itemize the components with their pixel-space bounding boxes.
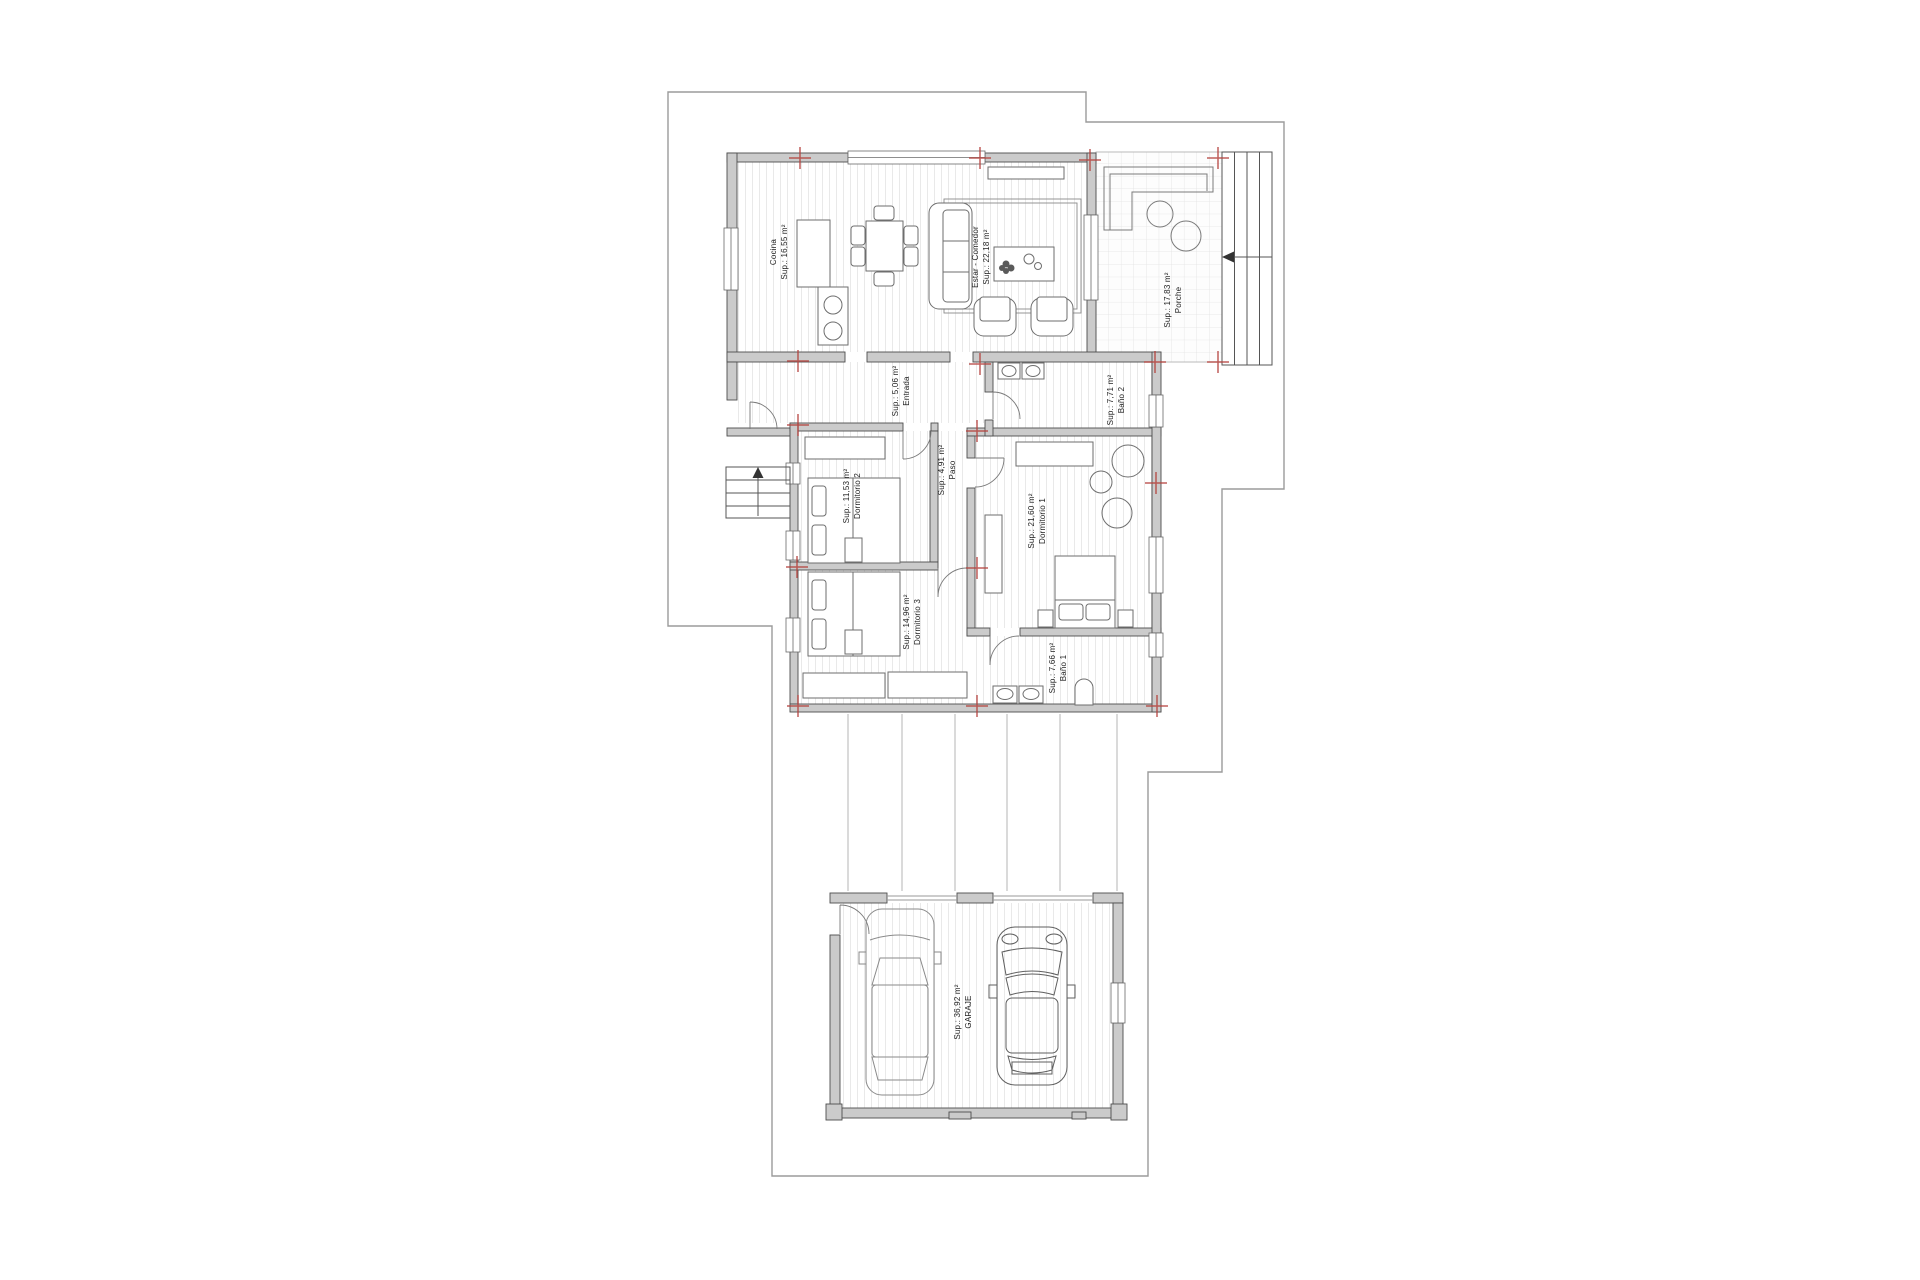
dining-chair bbox=[874, 206, 894, 220]
wardrobe bbox=[803, 673, 885, 698]
dining-chair bbox=[904, 226, 918, 245]
room-label-dormitorio1: Sup.: 21,60 m² Dormitorio 1 bbox=[1024, 446, 1050, 596]
room-area: Sup.: 7,71 m² bbox=[1105, 325, 1116, 475]
room-area: Sup.: 22,18 m² bbox=[981, 182, 992, 332]
room-name: Baño 2 bbox=[1116, 325, 1127, 475]
dining-chair bbox=[874, 272, 894, 286]
pillow bbox=[812, 619, 826, 649]
room-name: Paso bbox=[947, 395, 958, 545]
room-area: Sup.: 4,91 m² bbox=[936, 395, 947, 545]
toilet bbox=[1075, 679, 1093, 705]
dining-table bbox=[866, 221, 903, 271]
tv-sideboard bbox=[988, 167, 1064, 179]
pillow bbox=[812, 525, 826, 555]
floor-plan-canvas: Cocina Sup.: 16,55 m² Estar - Comedor Su… bbox=[0, 0, 1920, 1280]
room-name: Entrada bbox=[901, 316, 912, 466]
room-name: Dormitorio 2 bbox=[852, 421, 863, 571]
room-area: Sup.: 17,83 m² bbox=[1162, 225, 1173, 375]
room-name: Porche bbox=[1173, 225, 1184, 375]
entrance-steps bbox=[726, 467, 790, 518]
room-area: Sup.: 16,55 m² bbox=[779, 177, 790, 327]
room-area: Sup.: 5,06 m² bbox=[890, 316, 901, 466]
room-label-entrada: Sup.: 5,06 m² Entrada bbox=[888, 316, 914, 466]
dining-chair bbox=[851, 226, 865, 245]
room-label-cocina: Cocina Sup.: 16,55 m² bbox=[766, 177, 792, 327]
dining-chair bbox=[851, 247, 865, 266]
room-name: Estar - Comedor bbox=[970, 182, 981, 332]
room-label-paso: Sup.: 4,91 m² Paso bbox=[934, 395, 960, 545]
room-label-bano1: Sup.: 7,66 m² Baño 1 bbox=[1045, 593, 1071, 743]
room-label-dormitorio2: Sup.: 11,53 m² Dormitorio 2 bbox=[839, 421, 865, 571]
room-area: Sup.: 36,92 m² bbox=[952, 937, 963, 1087]
driveway-lines bbox=[848, 714, 1117, 891]
bed-table bbox=[845, 630, 862, 654]
pillow bbox=[812, 486, 826, 516]
steps-up-arrow bbox=[753, 467, 764, 478]
pillow bbox=[1086, 604, 1110, 620]
desk bbox=[985, 515, 1002, 593]
room-name: Dormitorio 3 bbox=[912, 547, 923, 697]
floor-plan-drawing bbox=[0, 0, 1920, 1280]
room-label-bano2: Sup.: 7,71 m² Baño 2 bbox=[1103, 325, 1129, 475]
room-label-garaje: Sup.: 36,92 m² GARAJE bbox=[950, 937, 976, 1087]
room-label-estar: Estar - Comedor Sup.: 22,18 m² bbox=[968, 182, 994, 332]
nightstand bbox=[1118, 610, 1133, 627]
room-name: Dormitorio 1 bbox=[1037, 446, 1048, 596]
room-name: GARAJE bbox=[963, 937, 974, 1087]
armchair-cushion bbox=[1037, 297, 1067, 321]
kitchen-counter bbox=[797, 220, 830, 287]
room-area: Sup.: 21,60 m² bbox=[1026, 446, 1037, 596]
pillow bbox=[812, 580, 826, 610]
floor-garaje bbox=[840, 903, 1113, 1108]
dining-chair bbox=[904, 247, 918, 266]
sofa-seat bbox=[943, 210, 969, 302]
room-area: Sup.: 11,53 m² bbox=[841, 421, 852, 571]
room-area: Sup.: 7,66 m² bbox=[1047, 593, 1058, 743]
porch-stairs bbox=[1222, 152, 1272, 365]
stairs-direction-arrow bbox=[1222, 252, 1234, 263]
room-label-dormitorio3: Sup.: 14,96 m² Dormitorio 3 bbox=[899, 547, 925, 697]
room-name: Cocina bbox=[768, 177, 779, 327]
room-label-porche: Sup.: 17,83 m² Porche bbox=[1160, 225, 1186, 375]
room-name: Baño 1 bbox=[1058, 593, 1069, 743]
room-area: Sup.: 14,96 m² bbox=[901, 547, 912, 697]
